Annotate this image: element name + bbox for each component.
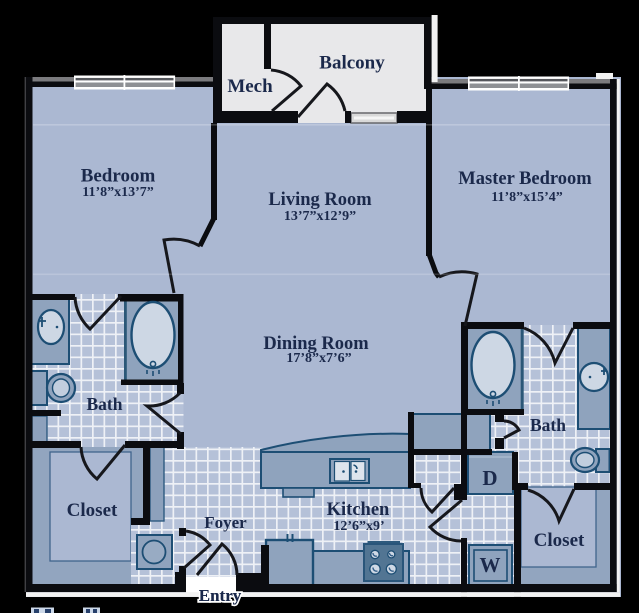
- svg-text:Foyer: Foyer: [204, 513, 247, 532]
- svg-text:Mech: Mech: [227, 76, 273, 97]
- svg-text:17’8”x7’6”: 17’8”x7’6”: [286, 351, 351, 366]
- svg-text:Closet: Closet: [67, 500, 118, 521]
- svg-text:D: D: [482, 466, 497, 490]
- svg-text:Balcony: Balcony: [319, 53, 385, 74]
- svg-text:Closet: Closet: [534, 530, 585, 551]
- svg-text:Master Bedroom: Master Bedroom: [458, 169, 592, 189]
- svg-text:13’7”x12’9”: 13’7”x12’9”: [284, 209, 356, 224]
- svg-text:11’8”x15’4”: 11’8”x15’4”: [491, 190, 563, 205]
- svg-text:Living Room: Living Room: [268, 190, 372, 210]
- svg-text:Bath: Bath: [530, 415, 566, 435]
- svg-text:Kitchen: Kitchen: [327, 500, 390, 520]
- svg-text:W: W: [480, 553, 501, 577]
- svg-text:Bath: Bath: [87, 394, 123, 414]
- svg-text:Bedroom: Bedroom: [81, 166, 156, 187]
- svg-text:12’6”x9’: 12’6”x9’: [333, 519, 384, 534]
- svg-text:Entry: Entry: [199, 586, 242, 605]
- svg-text:11’8”x13’7”: 11’8”x13’7”: [82, 185, 154, 200]
